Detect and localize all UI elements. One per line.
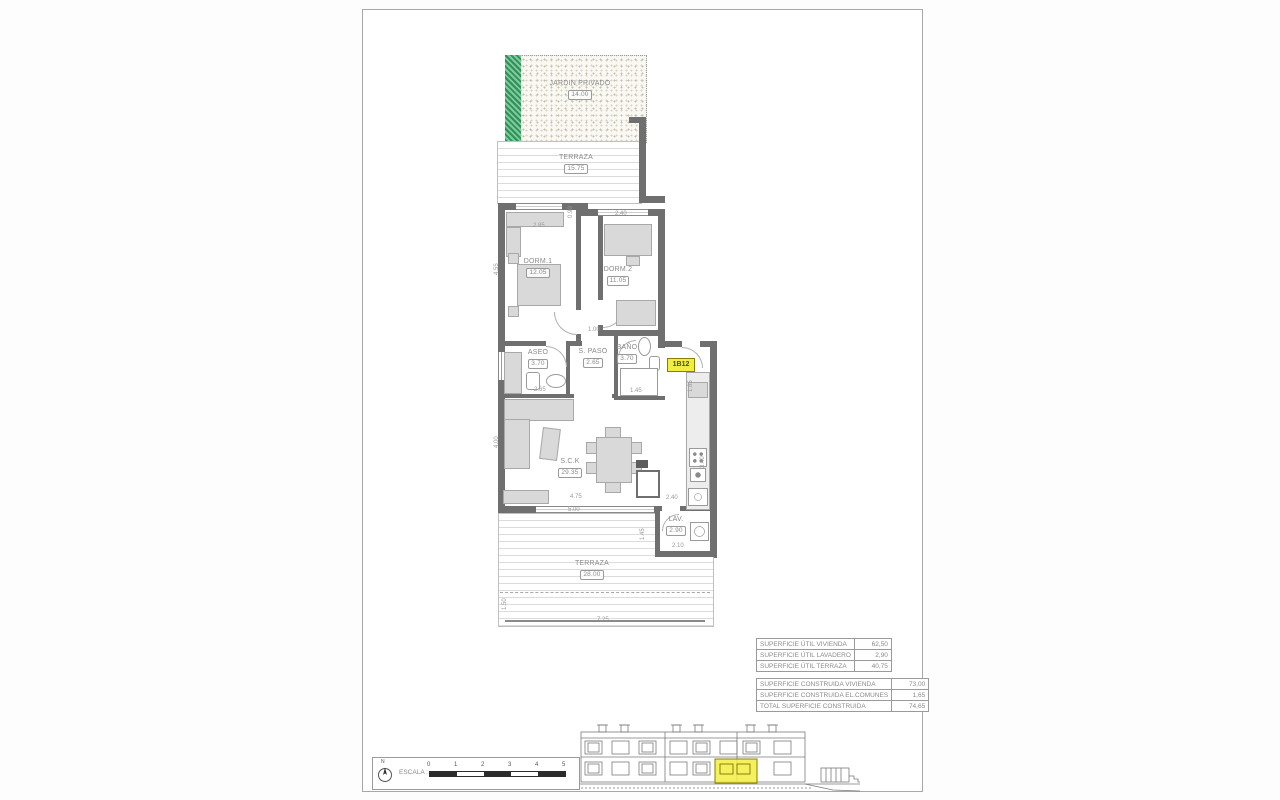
table-cell-value: 62,50 <box>854 639 891 650</box>
table-cell-label: SUPERFICIE ÚTIL TERRAZA <box>757 661 855 672</box>
garden-label: JARDIN PRIVADO <box>545 80 615 89</box>
aseo-area-value: 3.70 <box>528 359 547 369</box>
wall <box>639 196 665 203</box>
wardrobe <box>616 300 656 326</box>
scale-tick: 3 <box>508 762 511 768</box>
wall <box>655 511 660 551</box>
dimension-label: 2.65 <box>534 387 546 393</box>
scale-segment <box>538 772 565 776</box>
scale-tick: 2 <box>481 762 484 768</box>
scale-segment <box>511 772 538 776</box>
washing-machine <box>690 522 709 541</box>
areas-table-built: SUPERFICIE CONSTRUIDA VIVIENDA 73,00 SUP… <box>756 678 929 712</box>
garden-hedge <box>505 55 521 141</box>
dimension-label: 1.00 <box>588 327 600 333</box>
room-label-paso: S. PASO 2.65 <box>576 348 610 368</box>
wall <box>629 117 646 123</box>
oven <box>688 488 708 506</box>
wall <box>658 341 682 347</box>
coffee-table <box>539 427 561 461</box>
chair <box>605 482 621 493</box>
table-row: SUPERFICIE CONSTRUIDA EL.COMUNES 1,65 <box>757 690 929 701</box>
fridge <box>636 470 660 498</box>
dimension-label: 3.40 <box>700 456 706 468</box>
drawing-sheet: JARDIN PRIVADO 14.00 TERRAZA 15.75 <box>0 0 1280 800</box>
wall <box>566 341 570 398</box>
table-cell-label: SUPERFICIE ÚTIL VIVIENDA <box>757 639 855 650</box>
dining-table <box>596 437 632 483</box>
vanity <box>504 352 522 394</box>
dorm2-label: DORM.2 <box>596 266 640 275</box>
highlighted-unit <box>715 759 757 783</box>
scale-label: ESCALA : <box>399 769 428 776</box>
dimension-label: 1.50 <box>502 598 508 610</box>
scale-tick: 5 <box>562 762 565 768</box>
dimension-label: 2.40 <box>615 211 627 217</box>
chair <box>631 442 642 454</box>
kitchen-sink <box>690 468 706 482</box>
table-cell-label: SUPERFICIE CONSTRUIDA VIVIENDA <box>757 679 892 690</box>
table-cell-value: 73,00 <box>892 679 929 690</box>
room-label-sck: S.C.K 29.35 <box>552 458 588 478</box>
dimension-label: 4.55 <box>494 263 500 275</box>
terrace-bottom-label: TERRAZA <box>566 560 618 569</box>
paso-area-value: 2.65 <box>583 358 602 368</box>
room-label-terrace-top: TERRAZA 15.75 <box>550 154 602 174</box>
table-cell-label: SUPERFICIE CONSTRUIDA EL.COMUNES <box>757 690 892 701</box>
scale-segment <box>430 772 457 776</box>
room-label-bano: BAÑO 3.70 <box>612 344 642 364</box>
wall <box>612 394 618 398</box>
wall <box>576 210 581 310</box>
paso-label: S. PASO <box>576 348 610 357</box>
dorm1-label: DORM.1 <box>516 258 560 267</box>
table-cell-value: 2,90 <box>854 650 891 661</box>
dimension-label: 1.85 <box>688 380 694 392</box>
wall <box>598 330 663 336</box>
dimension-label: 5.00 <box>568 507 580 513</box>
room-label-aseo: ASEO 3.70 <box>522 349 554 369</box>
scale-bar <box>429 771 566 777</box>
wall <box>710 511 717 557</box>
table-row: SUPERFICIE CONSTRUIDA VIVIENDA 73,00 <box>757 679 929 690</box>
lav-label: LAV. <box>662 516 690 525</box>
dorm1-area-value: 12.05 <box>526 268 549 278</box>
north-arrow-icon <box>376 764 394 784</box>
table-row: SUPERFICIE ÚTIL VIVIENDA 62,50 <box>757 639 892 650</box>
terrace-top-label: TERRAZA <box>550 154 602 163</box>
wall <box>655 551 717 557</box>
tv-bench <box>503 490 549 504</box>
wall <box>658 209 665 348</box>
scale-tick: 4 <box>535 762 538 768</box>
bed <box>604 224 652 256</box>
building-elevation <box>575 710 860 792</box>
scale-tick: 1 <box>454 762 457 768</box>
dimension-label: 2.10 <box>672 543 684 549</box>
scale-tick: 0 <box>427 762 430 768</box>
chair <box>586 442 597 454</box>
dimension-label: 4.75 <box>570 494 582 500</box>
table-cell-value: 40,75 <box>854 661 891 672</box>
dimension-label: 4.00 <box>494 436 500 448</box>
wall <box>639 117 646 203</box>
terrace-top-area-value: 15.75 <box>564 164 587 174</box>
areas-table-util: SUPERFICIE ÚTIL VIVIENDA 62,50 SUPERFICI… <box>756 638 892 672</box>
chair <box>605 427 621 438</box>
wall <box>498 394 574 398</box>
window <box>516 203 562 210</box>
aseo-label: ASEO <box>522 349 554 358</box>
scale-segment <box>484 772 511 776</box>
dimension-label: 7.25 <box>597 617 609 623</box>
dimension-label: 1.45 <box>640 528 646 540</box>
room-label-dorm2: DORM.2 11.05 <box>596 266 640 286</box>
bano-area-value: 3.70 <box>617 354 636 364</box>
table-cell-value: 1,65 <box>892 690 929 701</box>
wall <box>576 334 581 341</box>
table-row: SUPERFICIE ÚTIL TERRAZA 40,75 <box>757 661 892 672</box>
bano-label: BAÑO <box>612 344 642 353</box>
table-row: SUPERFICIE ÚTIL LAVADERO 2,90 <box>757 650 892 661</box>
sck-area-value: 29.35 <box>558 468 581 478</box>
room-label-lav: LAV. 2.90 <box>662 516 690 536</box>
cabinet <box>636 460 648 468</box>
dimension-label: 1.45 <box>630 388 642 394</box>
sliding-window <box>536 506 654 513</box>
lav-area-value: 2.90 <box>666 526 685 536</box>
scale-box: N ESCALA : 0 1 2 3 4 5 <box>372 757 580 790</box>
dimension-label: 2.40 <box>666 495 678 501</box>
wall <box>614 396 665 400</box>
room-label-terrace-bottom: TERRAZA 28.00 <box>566 560 618 580</box>
sck-label: S.C.K <box>552 458 588 467</box>
bench <box>626 256 640 266</box>
scale-segment <box>457 772 484 776</box>
garden-area-value: 14.00 <box>568 90 591 100</box>
table-cell-value: 74,65 <box>892 701 929 712</box>
unit-tag: 1B12 <box>667 358 695 372</box>
dimension-label: 2.85 <box>533 223 545 229</box>
nightstand <box>508 306 519 317</box>
sofa-chaise <box>504 419 530 469</box>
wall <box>498 341 546 346</box>
table-cell-label: SUPERFICIE ÚTIL LAVADERO <box>757 650 855 661</box>
dimension-label: 0.90 <box>568 206 574 218</box>
room-label-dorm1: DORM.1 12.05 <box>516 258 560 278</box>
wall <box>598 216 603 300</box>
sofa <box>504 399 574 421</box>
terrace-railing <box>500 592 710 593</box>
sink <box>546 374 566 388</box>
dorm2-area-value: 11.05 <box>607 276 630 286</box>
room-label-garden: JARDIN PRIVADO 14.00 <box>545 80 615 100</box>
terrace-bottom-area-value: 28.00 <box>580 570 603 580</box>
